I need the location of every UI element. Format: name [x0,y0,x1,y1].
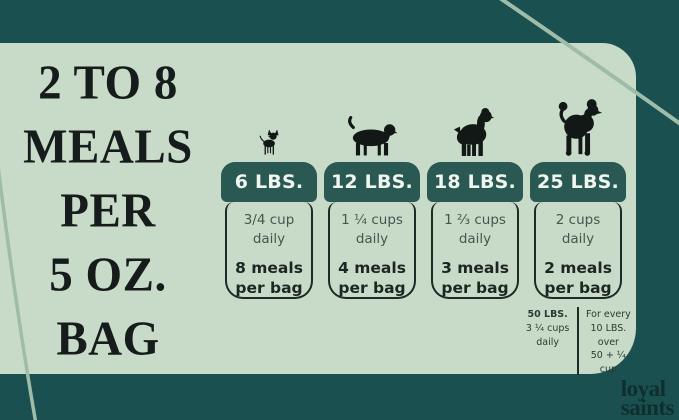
daily-amount: 1 ¼ cups daily [330,211,414,249]
daily-amount: 2 cups daily [536,211,620,249]
feeding-details: 1 ⅔ cups daily 3 meals per bag [431,202,519,299]
feeding-columns: 6 LBS. 3/4 cup daily 8 meals per bag [221,93,626,299]
footnote-right: For every 10 LBS. over 50 + ¼ cup [583,305,634,377]
daily-amount: 1 ⅔ cups daily [433,211,517,249]
daily-amount: 3/4 cup daily [227,211,311,249]
headline-line: 5 OZ. [2,242,214,309]
weight-header: 18 LBS. [427,162,523,202]
feeding-column-6lbs: 6 LBS. 3/4 cup daily 8 meals per bag [221,93,317,299]
weight-header: 6 LBS. [221,162,317,202]
feeding-column-12lbs: 12 LBS. 1 ¼ cups daily 4 meals per bag [324,93,420,299]
logo-line: saints [621,399,674,417]
infographic-canvas: 2 TO 8 MEALS PER 5 OZ. BAG [0,0,679,420]
feeding-details: 1 ¼ cups daily 4 meals per bag [328,202,416,299]
spaniel-icon [427,93,523,157]
dachshund-icon [324,93,420,157]
poodle-icon [530,93,626,157]
footnote-left: 50 LBS. 3 ¼ cups daily [522,305,573,377]
weight-label: 25 LBS. [537,171,619,193]
weight-label: 12 LBS. [331,171,413,193]
footnote-divider [577,307,579,375]
meals-per-bag: 3 meals per bag [433,258,517,299]
page-title: 2 TO 8 MEALS PER 5 OZ. BAG [2,51,214,371]
headline-line: BAG [2,306,214,373]
footnote-50lbs: 50 LBS. 3 ¼ cups daily For every 10 LBS.… [522,305,634,377]
brand-logo: loyal saints [621,380,674,417]
headline-line: MEALS [2,114,214,181]
weight-header: 25 LBS. [530,162,626,202]
feeding-column-18lbs: 18 LBS. 1 ⅔ cups daily 3 meals per bag [427,93,523,299]
panel-content: 2 TO 8 MEALS PER 5 OZ. BAG [0,43,636,374]
feeding-column-25lbs: 25 LBS. 2 cups daily 2 meals per bag [530,93,626,299]
weight-label: 18 LBS. [434,171,516,193]
feeding-details: 3/4 cup daily 8 meals per bag [225,202,313,299]
meals-per-bag: 2 meals per bag [536,258,620,299]
meals-per-bag: 4 meals per bag [330,258,414,299]
meals-per-bag: 8 meals per bag [227,258,311,299]
feeding-details: 2 cups daily 2 meals per bag [534,202,622,299]
weight-header: 12 LBS. [324,162,420,202]
headline-line: 2 TO 8 [2,50,214,117]
weight-label: 6 LBS. [235,171,304,193]
headline-line: PER [2,178,214,245]
chihuahua-icon [221,93,317,157]
